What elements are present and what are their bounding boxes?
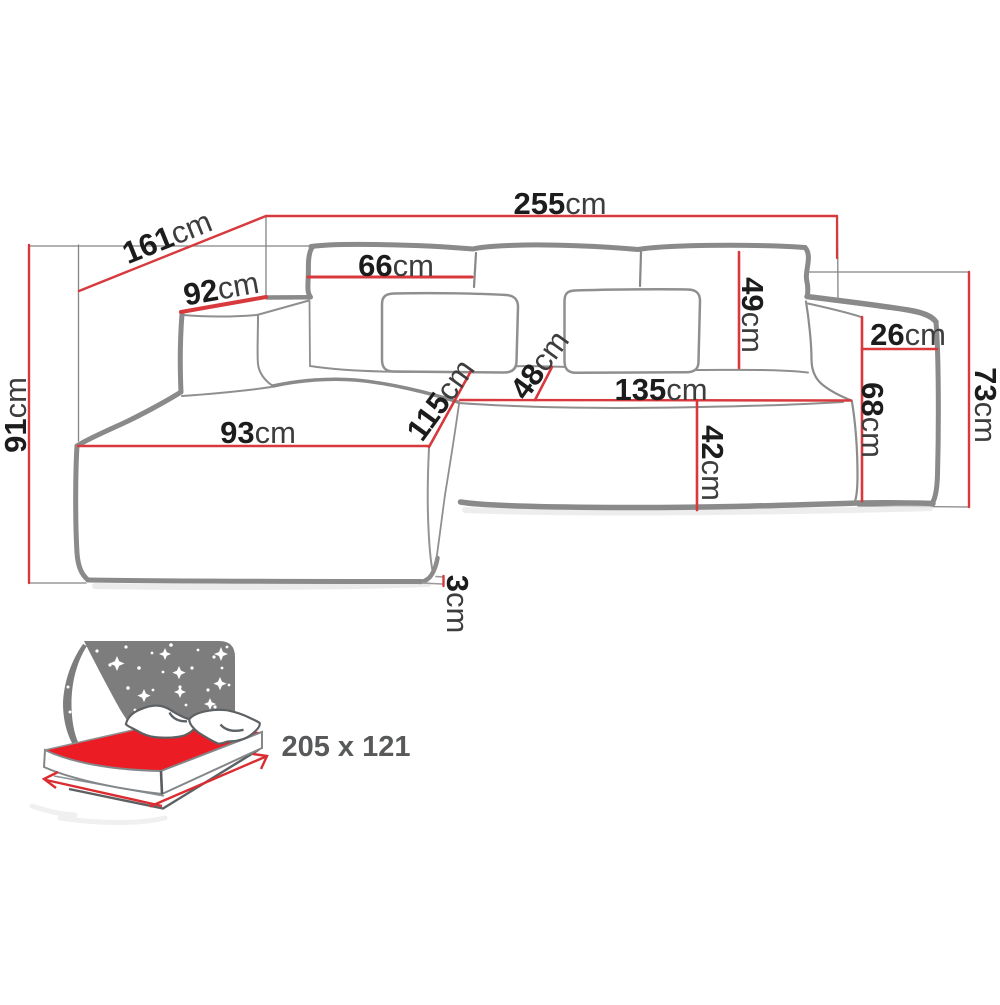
svg-text:26cm: 26cm (870, 317, 946, 352)
svg-text:49cm: 49cm (735, 277, 770, 353)
svg-text:135cm: 135cm (614, 372, 707, 407)
svg-text:255cm: 255cm (513, 186, 606, 221)
svg-text:93cm: 93cm (220, 415, 296, 450)
svg-text:42cm: 42cm (695, 425, 730, 501)
svg-text:68cm: 68cm (855, 382, 890, 458)
svg-text:91cm: 91cm (0, 377, 33, 453)
svg-text:66cm: 66cm (358, 248, 434, 283)
svg-text:205 x 121: 205 x 121 (281, 731, 410, 763)
svg-text:3cm: 3cm (440, 575, 475, 634)
svg-text:73cm: 73cm (968, 367, 1000, 443)
